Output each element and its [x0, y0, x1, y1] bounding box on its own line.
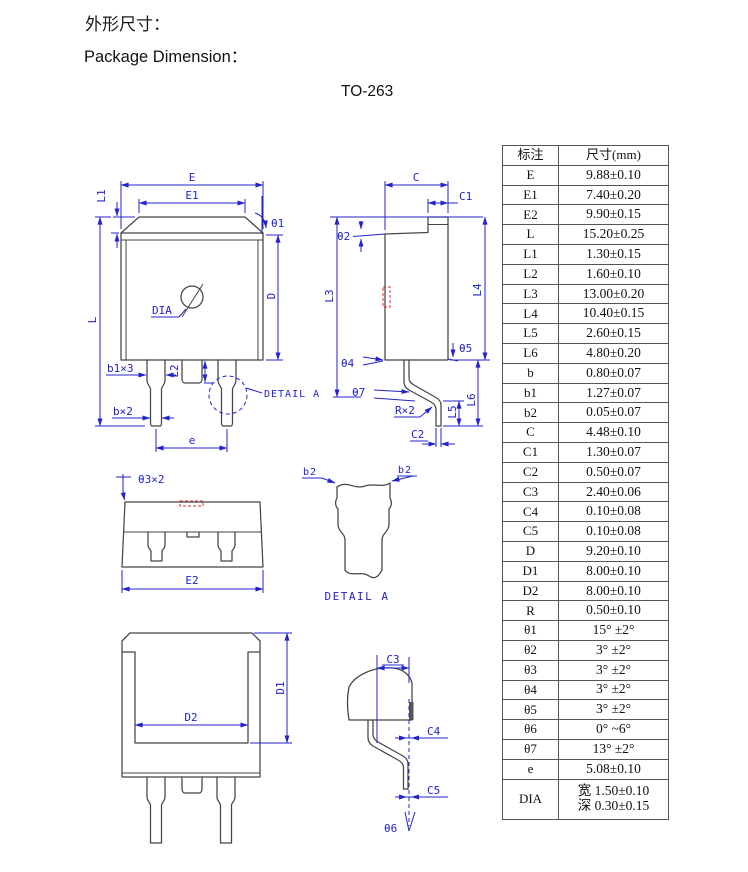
- dim-label-theta4: θ4: [341, 357, 355, 370]
- lead-detail-outline: [348, 668, 414, 789]
- dim-label-L1: L1: [95, 189, 108, 202]
- dim-label-theta7: θ7: [352, 386, 365, 399]
- dim-label-L5: L5: [446, 405, 459, 418]
- dim-symbol: C1: [503, 442, 559, 462]
- page-title-chinese: 外形尺寸：: [85, 10, 170, 35]
- dim-label-D1: D1: [274, 681, 287, 694]
- table-row: θ713° ±2°: [503, 739, 669, 759]
- dim-value: 3° ±2°: [559, 660, 669, 680]
- table-row: L313.00±0.20: [503, 284, 669, 304]
- table-row: E17.40±0.20: [503, 185, 669, 205]
- table-row: θ23° ±2°: [503, 640, 669, 660]
- dim-symbol: D1: [503, 561, 559, 581]
- dim-label-DIA: DIA: [152, 304, 172, 317]
- front-view-drawing: E E1 L1 θ1 L D DIA L2 b1×3: [85, 168, 330, 460]
- dim-label-D2: D2: [184, 711, 197, 724]
- dim-value: 15.20±0.25: [559, 225, 669, 245]
- dim-label-C3: C3: [386, 653, 399, 666]
- detail-a-drawing: b2 b2 DETAIL A: [295, 462, 420, 610]
- dim-symbol: θ3: [503, 660, 559, 680]
- table-row: θ115° ±2°: [503, 621, 669, 641]
- dim-symbol: C2: [503, 462, 559, 482]
- dim-symbol: L: [503, 225, 559, 245]
- dim-symbol: b: [503, 363, 559, 383]
- dim-label-D: D: [265, 293, 278, 300]
- dim-value: 7.40±0.20: [559, 185, 669, 205]
- dim-label-b2-left: b2: [303, 467, 317, 478]
- lead-cross-section: [409, 702, 414, 720]
- side-view-dimensions: C C1 θ2 L3 L4 θ4 θ5 θ7 R×2: [323, 171, 490, 447]
- dim-value: 2.60±0.15: [559, 324, 669, 344]
- dim-label-e: e: [189, 434, 196, 447]
- dim-symbol: C3: [503, 482, 559, 502]
- table-row: θ60° ~6°: [503, 720, 669, 740]
- dim-label-theta3x2: θ3×2: [138, 473, 165, 486]
- dim-label-E1: E1: [185, 189, 198, 202]
- table-row: L52.60±0.15: [503, 324, 669, 344]
- dimensions-table: 标注尺寸(mm) E9.88±0.10 E17.40±0.20 E29.90±0…: [502, 145, 669, 820]
- dim-symbol: θ2: [503, 640, 559, 660]
- dim-label-C4: C4: [427, 725, 441, 738]
- dim-symbol: e: [503, 759, 559, 779]
- dim-label-bx2: b×2: [113, 405, 133, 418]
- dim-label-theta6: θ6: [384, 822, 397, 835]
- table-row: L64.80±0.20: [503, 343, 669, 363]
- table-row: D18.00±0.10: [503, 561, 669, 581]
- dim-symbol: E1: [503, 185, 559, 205]
- dim-label-b2-right: b2: [398, 465, 412, 476]
- table-row: θ43° ±2°: [503, 680, 669, 700]
- table-row: C32.40±0.06: [503, 482, 669, 502]
- back-view-drawing: D1 D2: [105, 625, 305, 870]
- page-title-english: Package Dimension：: [84, 43, 247, 67]
- dim-value: 0.80±0.07: [559, 363, 669, 383]
- top-view-outline: [122, 501, 263, 567]
- detail-a-outline: [336, 483, 392, 578]
- dim-symbol: E: [503, 165, 559, 185]
- table-row: e5.08±0.10: [503, 759, 669, 779]
- dim-symbol: C5: [503, 522, 559, 542]
- dim-label-C: C: [413, 171, 420, 184]
- lead-detail-dimensions: C3 C4 C5 θ6: [377, 653, 448, 835]
- dim-label-C1: C1: [459, 190, 472, 203]
- table-row: θ53° ±2°: [503, 700, 669, 720]
- dim-symbol: θ5: [503, 700, 559, 720]
- dim-value: 0.10±0.08: [559, 502, 669, 522]
- dim-value: 9.20±0.10: [559, 541, 669, 561]
- dim-value: 0.50±0.07: [559, 462, 669, 482]
- top-view-dimensions: θ3×2 E2: [116, 473, 263, 593]
- dim-symbol: L4: [503, 304, 559, 324]
- dim-value: 4.80±0.20: [559, 343, 669, 363]
- table-row: C40.10±0.08: [503, 502, 669, 522]
- side-view-drawing: C C1 θ2 L3 L4 θ4 θ5 θ7 R×2: [325, 168, 495, 460]
- table-row: C50.10±0.08: [503, 522, 669, 542]
- package-name: TO-263: [341, 83, 393, 101]
- side-view-outline: [383, 217, 448, 426]
- dim-value: 5.08±0.10: [559, 759, 669, 779]
- dim-symbol: θ6: [503, 720, 559, 740]
- dim-value: 3° ±2°: [559, 700, 669, 720]
- table-header-row: 标注尺寸(mm): [503, 146, 669, 166]
- dim-label-theta2: θ2: [337, 230, 350, 243]
- dim-label-theta1: θ1: [271, 217, 284, 230]
- dim-label-L4: L4: [471, 283, 484, 297]
- dim-symbol: L1: [503, 244, 559, 264]
- marking-highlight: [383, 287, 390, 307]
- col-header-size: 尺寸(mm): [559, 146, 669, 166]
- table-row: DIA宽 1.50±0.10 深 0.30±0.15: [503, 779, 669, 819]
- back-view-dimensions: D1 D2: [135, 633, 292, 743]
- dim-label-C5: C5: [427, 784, 440, 797]
- dim-value: 8.00±0.10: [559, 581, 669, 601]
- table-row: C20.50±0.07: [503, 462, 669, 482]
- dim-label-Rx2: R×2: [395, 404, 415, 417]
- dim-value: 1.27±0.07: [559, 383, 669, 403]
- dim-symbol: E2: [503, 205, 559, 225]
- dim-value: 3° ±2°: [559, 640, 669, 660]
- table-row: E9.88±0.10: [503, 165, 669, 185]
- dim-value: 宽 1.50±0.10 深 0.30±0.15: [559, 779, 669, 819]
- col-header-symbol: 标注: [503, 146, 559, 166]
- dim-value: 13° ±2°: [559, 739, 669, 759]
- dim-value: 1.60±0.10: [559, 264, 669, 284]
- lead-detail-drawing: C3 C4 C5 θ6: [335, 635, 480, 870]
- dim-label-E2: E2: [185, 574, 198, 587]
- table-row: θ33° ±2°: [503, 660, 669, 680]
- dim-symbol: D2: [503, 581, 559, 601]
- dim-symbol: R: [503, 601, 559, 621]
- table-row: b0.80±0.07: [503, 363, 669, 383]
- dim-label-E: E: [189, 171, 196, 184]
- dim-symbol: D: [503, 541, 559, 561]
- dim-symbol: θ1: [503, 621, 559, 641]
- table-row: R0.50±0.10: [503, 601, 669, 621]
- dim-symbol: L2: [503, 264, 559, 284]
- table-row: L15.20±0.25: [503, 225, 669, 245]
- table-row: E29.90±0.15: [503, 205, 669, 225]
- dim-value: 0.50±0.10: [559, 601, 669, 621]
- dim-symbol: L5: [503, 324, 559, 344]
- table-row: L11.30±0.15: [503, 244, 669, 264]
- detail-a-callout-label: DETAIL A: [264, 389, 320, 400]
- table-row: L21.60±0.10: [503, 264, 669, 284]
- top-view-drawing: θ3×2 E2: [95, 470, 310, 595]
- dim-value: 10.40±0.15: [559, 304, 669, 324]
- table-row: D28.00±0.10: [503, 581, 669, 601]
- dim-symbol: L3: [503, 284, 559, 304]
- dim-value: 1.30±0.07: [559, 442, 669, 462]
- dim-value: 0.05±0.07: [559, 403, 669, 423]
- dim-value: 2.40±0.06: [559, 482, 669, 502]
- datasheet-page: 外形尺寸： Package Dimension： TO-263 E: [0, 0, 748, 872]
- dim-label-b1x3: b1×3: [107, 362, 134, 375]
- dim-value: 4.48±0.10: [559, 423, 669, 443]
- dim-value: 13.00±0.20: [559, 284, 669, 304]
- dim-value: 15° ±2°: [559, 621, 669, 641]
- dim-symbol: C4: [503, 502, 559, 522]
- dim-symbol: θ7: [503, 739, 559, 759]
- table-row: L410.40±0.15: [503, 304, 669, 324]
- back-view-outline: [122, 633, 260, 843]
- table-row: C4.48±0.10: [503, 423, 669, 443]
- dim-symbol: b1: [503, 383, 559, 403]
- table-row: D9.20±0.10: [503, 541, 669, 561]
- dim-label-C2: C2: [411, 428, 424, 441]
- dim-value: 3° ±2°: [559, 680, 669, 700]
- dim-value: 0° ~6°: [559, 720, 669, 740]
- dim-value: 0.10±0.08: [559, 522, 669, 542]
- dim-value: 9.88±0.10: [559, 165, 669, 185]
- front-view-outline: [121, 217, 263, 426]
- dim-value: 1.30±0.15: [559, 244, 669, 264]
- dim-value: 8.00±0.10: [559, 561, 669, 581]
- dim-symbol: b2: [503, 403, 559, 423]
- dim-label-theta5: θ5: [459, 342, 472, 355]
- dim-label-L: L: [86, 316, 99, 323]
- dim-label-L6: L6: [465, 393, 478, 406]
- table-row: C11.30±0.07: [503, 442, 669, 462]
- dim-symbol: θ4: [503, 680, 559, 700]
- table-row: b20.05±0.07: [503, 403, 669, 423]
- dim-symbol: C: [503, 423, 559, 443]
- detail-a-callout-circle: [209, 376, 247, 414]
- dim-value: 9.90±0.15: [559, 205, 669, 225]
- dim-symbol: DIA: [503, 779, 559, 819]
- dim-symbol: L6: [503, 343, 559, 363]
- dim-label-L3: L3: [323, 289, 336, 302]
- table-row: b11.27±0.07: [503, 383, 669, 403]
- detail-a-dimensions: b2 b2 DETAIL A: [302, 465, 417, 603]
- detail-a-caption: DETAIL A: [325, 590, 390, 603]
- dim-label-L2: L2: [168, 364, 181, 377]
